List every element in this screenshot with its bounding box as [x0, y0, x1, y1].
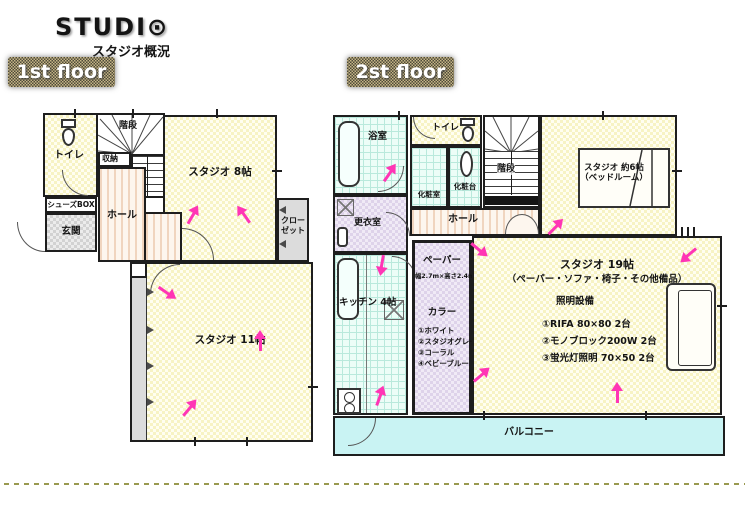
studio19-lighting-title: 照明設備 — [556, 296, 594, 307]
room-label-toilet-2f: トイレ — [432, 123, 459, 134]
paper-color-item: ①ホワイト — [418, 325, 477, 336]
paper-size: 幅2.7m×高さ2.4m — [415, 273, 469, 281]
stairs-landing — [485, 196, 538, 205]
direction-arrow — [611, 381, 623, 403]
sofa-icon — [666, 283, 716, 371]
paper-color-item: ②スタジオグレー — [418, 336, 477, 347]
wall-tick — [717, 305, 727, 307]
room-label-bath: 浴室 — [368, 131, 387, 142]
wall-hatch — [693, 227, 695, 237]
stairs-fan-icon — [485, 117, 538, 153]
stove-icon — [337, 388, 361, 414]
lighting-item: ③蛍光灯照明 70×50 2台 — [542, 350, 657, 367]
studio6-label-line1: スタジオ 約6帖 — [580, 163, 648, 173]
basin-icon — [337, 227, 348, 247]
floorplan-2f: 浴室 トイレ 化粧室 化粧台 階段 — [0, 0, 749, 513]
kitchen-counter-icon — [337, 258, 359, 320]
paper-color-title: カラー — [415, 307, 469, 318]
sofa-seat — [678, 290, 712, 366]
wall-tick — [602, 111, 604, 120]
bathtub-icon — [338, 121, 360, 187]
wall-tick — [645, 411, 647, 420]
paper-color-item: ④ベビーブルー — [418, 358, 477, 369]
paper-title: ペーパー — [415, 255, 469, 266]
paper-booth-2f: ペーパー 幅2.7m×高さ2.4m カラー ①ホワイト ②スタジオグレー ③コー… — [412, 240, 472, 415]
wall-tick — [398, 111, 400, 120]
room-label-hall-2f: ホール — [448, 214, 478, 226]
paper-color-item: ③コーラル — [418, 347, 477, 358]
toilet-tank-icon — [460, 118, 475, 126]
wall-hatch — [687, 227, 689, 237]
studio-floorplan-sheet: STUDI⊙ スタジオ概況 1st floor 2st floor トイレ 階段… — [0, 0, 749, 513]
lighting-item: ②モノブロック200W 2台 — [542, 333, 657, 350]
wall-tick — [672, 170, 682, 172]
vanity-mirror-icon — [460, 151, 473, 177]
room-label-powder: 化粧室 — [410, 190, 448, 199]
bottom-separator — [4, 483, 745, 485]
room-label-changing: 更衣室 — [354, 218, 381, 229]
hall-seam — [146, 216, 152, 258]
wall-tick — [483, 411, 485, 420]
lighting-item: ①RIFA 80×80 2台 — [542, 316, 657, 333]
kitchen-divider — [366, 255, 367, 413]
shelf-icon — [337, 199, 354, 216]
burner-icon — [344, 403, 355, 414]
studio6-label-line2: （ベッドルーム） — [580, 173, 648, 183]
room-label-kitchen: キッチン 4帖 — [339, 297, 396, 308]
burner-icon — [344, 392, 355, 403]
room-label-hall-1f: ホール — [107, 210, 137, 222]
room-label-studio6: スタジオ 約6帖 （ベッドルーム） — [580, 163, 648, 183]
room-label-vanity: 化粧台 — [448, 182, 482, 191]
studio19-lighting-list: ①RIFA 80×80 2台 ②モノブロック200W 2台 ③蛍光灯照明 70×… — [542, 316, 657, 367]
room-label-balcony: バルコニー — [333, 427, 725, 439]
room-label-stairs-2f: 階段 — [497, 164, 515, 175]
paper-color-list: ①ホワイト ②スタジオグレー ③コーラル ④ベビーブルー — [418, 325, 477, 369]
wall-hatch — [681, 227, 683, 237]
